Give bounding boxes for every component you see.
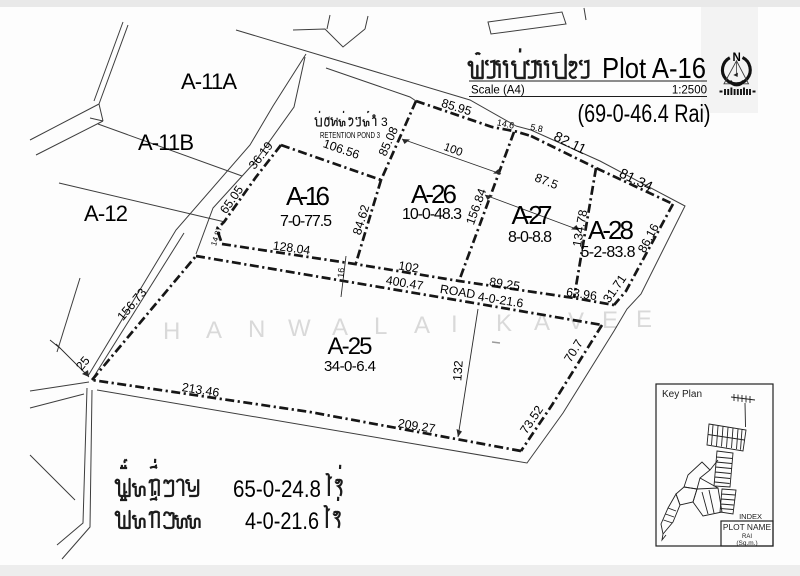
svg-text:3: 3 <box>381 115 388 129</box>
svg-text:4-0-21.6: 4-0-21.6 <box>245 508 319 535</box>
svg-text:(Sq.m.): (Sq.m.) <box>736 540 757 547</box>
svg-text:10-0-48.3: 10-0-48.3 <box>402 206 462 223</box>
svg-text:K: K <box>496 310 512 337</box>
svg-text:W: W <box>288 315 311 342</box>
svg-text:A-16: A-16 <box>286 181 330 211</box>
svg-text:E: E <box>602 307 618 334</box>
svg-text:Scale (A4): Scale (A4) <box>471 85 525 97</box>
svg-text:132: 132 <box>450 360 465 382</box>
svg-text:A-27: A-27 <box>512 200 553 230</box>
svg-text:A: A <box>206 317 222 344</box>
svg-text:INDEX: INDEX <box>739 512 762 521</box>
svg-text:5-2-83.8: 5-2-83.8 <box>581 244 636 261</box>
svg-text:I: I <box>451 311 458 338</box>
svg-text:34-0-6.4: 34-0-6.4 <box>324 358 376 375</box>
svg-text:A-11A: A-11A <box>181 69 237 94</box>
svg-text:A: A <box>414 312 430 339</box>
svg-text:65-0-24.8: 65-0-24.8 <box>233 476 321 503</box>
svg-text:A-11B: A-11B <box>138 130 194 155</box>
svg-text:PLOT NAME: PLOT NAME <box>723 522 772 532</box>
svg-text:Plot A-16: Plot A-16 <box>602 53 706 85</box>
svg-text:A: A <box>534 309 550 336</box>
svg-text:1:2500: 1:2500 <box>672 85 707 97</box>
svg-text:RETENTION POND 3: RETENTION POND 3 <box>320 130 380 140</box>
svg-text:A-25: A-25 <box>328 333 373 360</box>
svg-text:(69-0-46.4 Rai): (69-0-46.4 Rai) <box>578 100 711 128</box>
svg-text:E: E <box>636 306 652 333</box>
svg-text:Key Plan: Key Plan <box>662 389 702 400</box>
svg-text:H: H <box>163 318 180 345</box>
svg-text:16: 16 <box>336 267 347 278</box>
svg-text:N: N <box>248 316 265 343</box>
svg-text:A-26: A-26 <box>411 179 457 209</box>
svg-text:8-0-8.8: 8-0-8.8 <box>508 229 552 246</box>
svg-text:A-12: A-12 <box>84 201 128 226</box>
svg-text:A-28: A-28 <box>588 215 634 245</box>
svg-text:7-0-77.5: 7-0-77.5 <box>280 213 332 230</box>
svg-text:L: L <box>374 313 387 340</box>
